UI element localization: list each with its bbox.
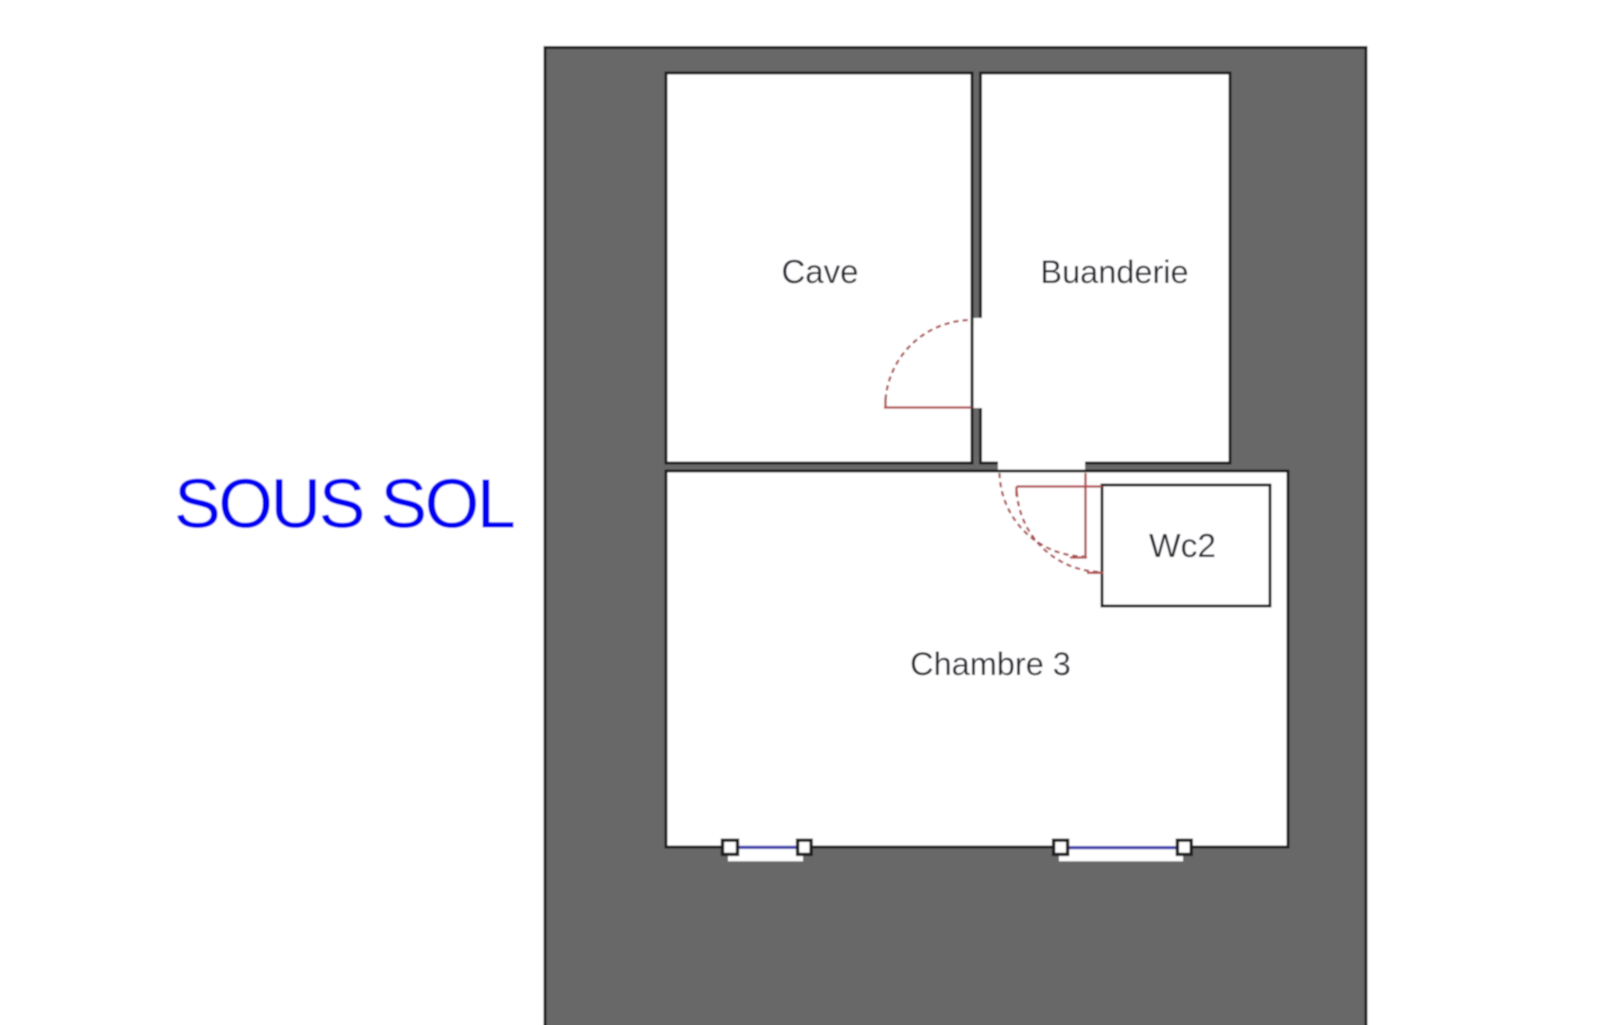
svg-text:Chambre 3: Chambre 3 <box>910 646 1071 682</box>
svg-text:Wc2: Wc2 <box>1149 528 1216 565</box>
svg-text:SOUS SOL: SOUS SOL <box>174 465 514 543</box>
svg-text:Cave: Cave <box>781 253 858 290</box>
svg-text:Buanderie: Buanderie <box>1040 254 1188 290</box>
